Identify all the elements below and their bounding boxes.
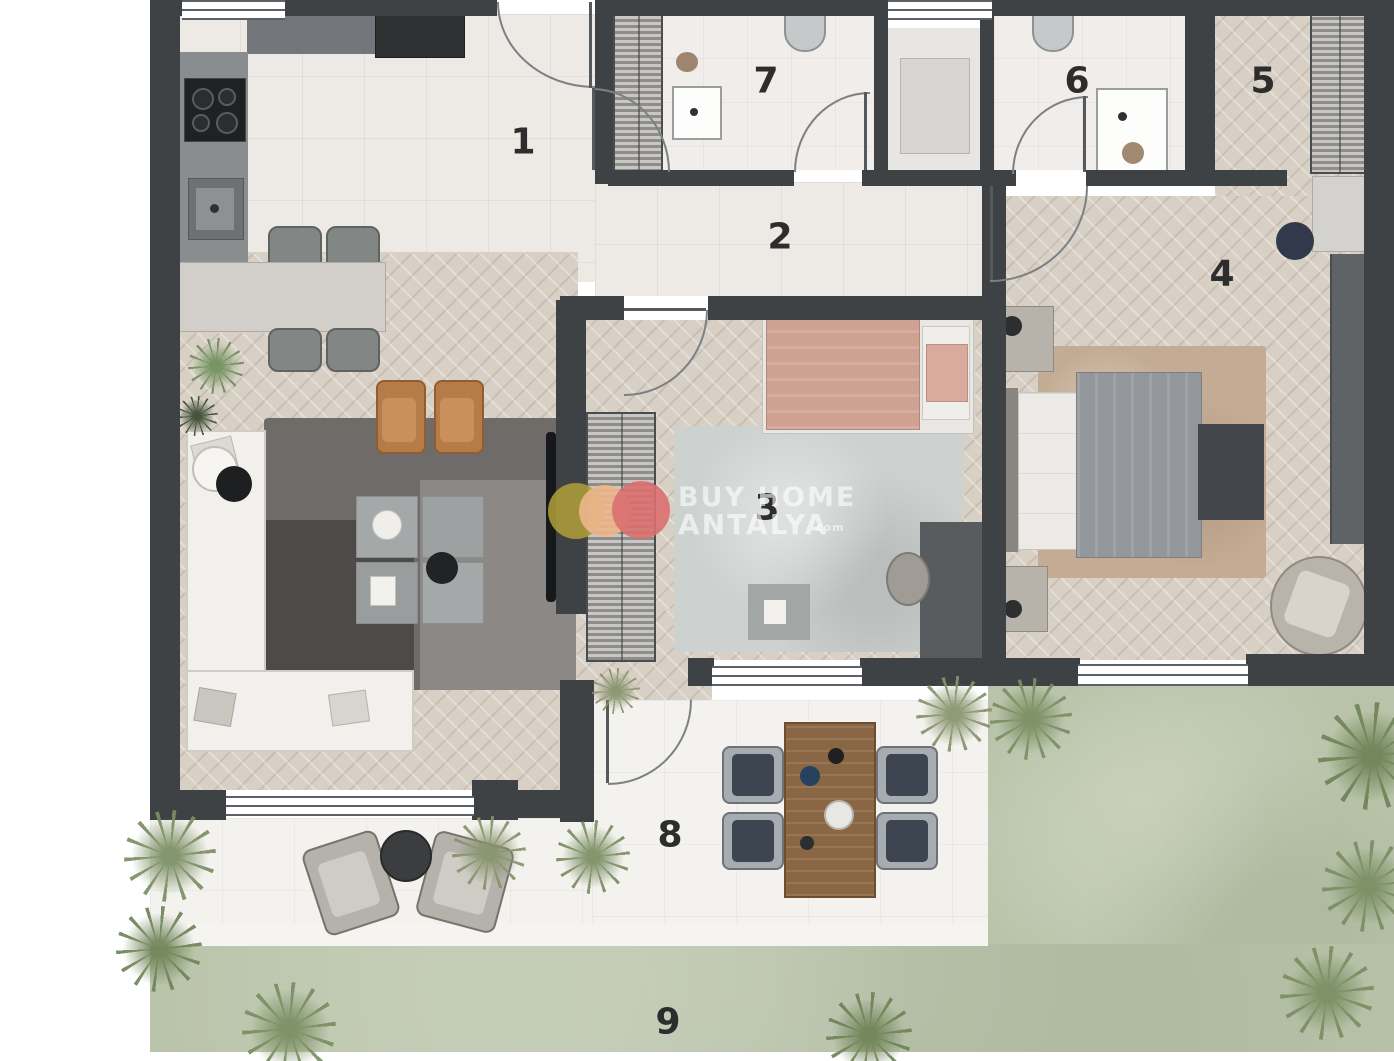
wall xyxy=(874,170,994,186)
bed-pillows xyxy=(1018,392,1078,550)
palm-tree-icon xyxy=(116,906,202,992)
plant-icon xyxy=(176,396,218,436)
garden-bottom xyxy=(150,944,1394,1052)
bed-duvet xyxy=(1076,372,1202,558)
wall xyxy=(1185,0,1215,170)
bath-decor xyxy=(1122,142,1144,164)
room-label-kitchen-living: 1 xyxy=(510,122,535,163)
entry-wardrobe xyxy=(1310,12,1368,174)
sofa-pillow xyxy=(193,687,236,727)
wall xyxy=(980,12,994,186)
floor-plan: 1 2 3 4 5 6 7 8 9 BUY HOME ANTALYA com xyxy=(0,0,1394,1061)
bathroom-door-leaf xyxy=(864,92,867,170)
dining-chair xyxy=(268,328,322,372)
window xyxy=(712,666,862,686)
palm-tree-icon xyxy=(124,810,216,902)
sofa-pillow xyxy=(328,690,370,727)
desk xyxy=(920,522,982,658)
wall xyxy=(150,0,180,818)
bed-throw xyxy=(1198,424,1264,520)
wall xyxy=(1364,0,1394,686)
window xyxy=(182,0,285,20)
faucet-icon xyxy=(690,108,698,116)
room-label-bathroom: 7 xyxy=(753,61,778,102)
wall xyxy=(556,300,586,614)
palm-tree-icon xyxy=(916,676,992,752)
palm-tree-icon xyxy=(592,668,640,714)
outdoor-chair xyxy=(876,746,938,804)
tableware xyxy=(800,766,820,786)
stove-icon xyxy=(184,78,246,142)
window xyxy=(1078,664,1248,686)
stove-burner xyxy=(216,112,238,134)
armchair-seat xyxy=(440,398,474,442)
table-decor xyxy=(426,552,458,584)
wall xyxy=(1185,170,1287,186)
dining-chair xyxy=(326,328,380,372)
wall xyxy=(708,296,1006,320)
sliding-door-window xyxy=(226,796,474,816)
shaft-unit xyxy=(900,58,970,154)
door-leaf xyxy=(592,88,595,170)
tableware xyxy=(824,800,854,830)
floor-cushion-decor xyxy=(764,600,786,624)
stove-burner xyxy=(192,114,210,132)
outdoor-side-table xyxy=(380,830,432,882)
outdoor-chair xyxy=(876,812,938,870)
bath-decor xyxy=(676,52,698,72)
pouf xyxy=(1276,222,1314,260)
nightstand-decor xyxy=(1004,600,1022,618)
wall xyxy=(1246,654,1394,686)
wall xyxy=(472,780,518,820)
single-bed-duvet xyxy=(766,316,920,430)
wall xyxy=(862,170,878,186)
outdoor-chair xyxy=(722,746,784,804)
table-decor-book xyxy=(370,576,396,606)
room-label-entry-hall: 5 xyxy=(1250,61,1275,102)
terrace-edge-path xyxy=(150,924,988,946)
bedroom-door-leaf xyxy=(624,308,706,311)
master-wardrobe xyxy=(1330,254,1368,544)
wall xyxy=(516,790,578,818)
master-bedroom-door-leaf xyxy=(990,186,993,280)
bed-pillow xyxy=(926,344,968,402)
table-decor xyxy=(372,510,402,540)
faucet-icon xyxy=(210,204,219,213)
palm-tree-icon xyxy=(1280,946,1374,1040)
stove-burner xyxy=(218,88,236,106)
tableware xyxy=(800,836,814,850)
room-label-master-bedroom: 4 xyxy=(1209,254,1234,295)
dining-table xyxy=(178,262,386,332)
wall xyxy=(597,0,888,16)
faucet-icon xyxy=(1118,112,1127,121)
tableware xyxy=(828,748,844,764)
desk-chair xyxy=(886,552,930,606)
window xyxy=(888,0,992,20)
watermark-line2: ANTALYA xyxy=(678,511,828,539)
room-label-ensuite: 6 xyxy=(1064,61,1089,102)
watermark-line1: BUY HOME xyxy=(678,484,856,511)
side-table-black xyxy=(216,466,252,502)
logo-circle-red xyxy=(612,481,670,539)
wall xyxy=(1086,170,1185,186)
wall xyxy=(874,12,888,186)
wall xyxy=(285,0,497,16)
shoe-cabinet xyxy=(1312,176,1366,252)
wall xyxy=(982,296,1006,664)
palm-tree-icon xyxy=(556,820,630,894)
wall xyxy=(688,658,714,686)
armchair-seat xyxy=(382,398,416,442)
entry-door-leaf xyxy=(589,2,592,88)
wall xyxy=(608,170,794,186)
room-label-garden: 9 xyxy=(655,1002,680,1043)
palm-tree-icon xyxy=(452,816,526,890)
ensuite-door-leaf xyxy=(1083,96,1086,172)
plant-icon xyxy=(188,338,244,394)
room-label-terrace: 8 xyxy=(657,815,682,856)
watermark-suffix: com xyxy=(816,522,845,533)
stove-burner xyxy=(192,88,214,110)
outdoor-chair xyxy=(722,812,784,870)
coffee-table xyxy=(422,496,484,558)
room-label-hallway: 2 xyxy=(767,217,792,258)
palm-tree-icon xyxy=(990,678,1072,760)
